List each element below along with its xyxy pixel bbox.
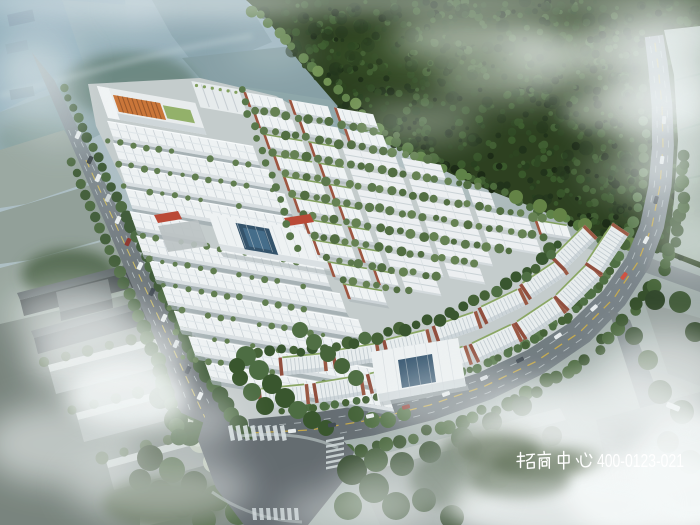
svg-text:400-0123-021: 400-0123-021 — [597, 451, 684, 471]
